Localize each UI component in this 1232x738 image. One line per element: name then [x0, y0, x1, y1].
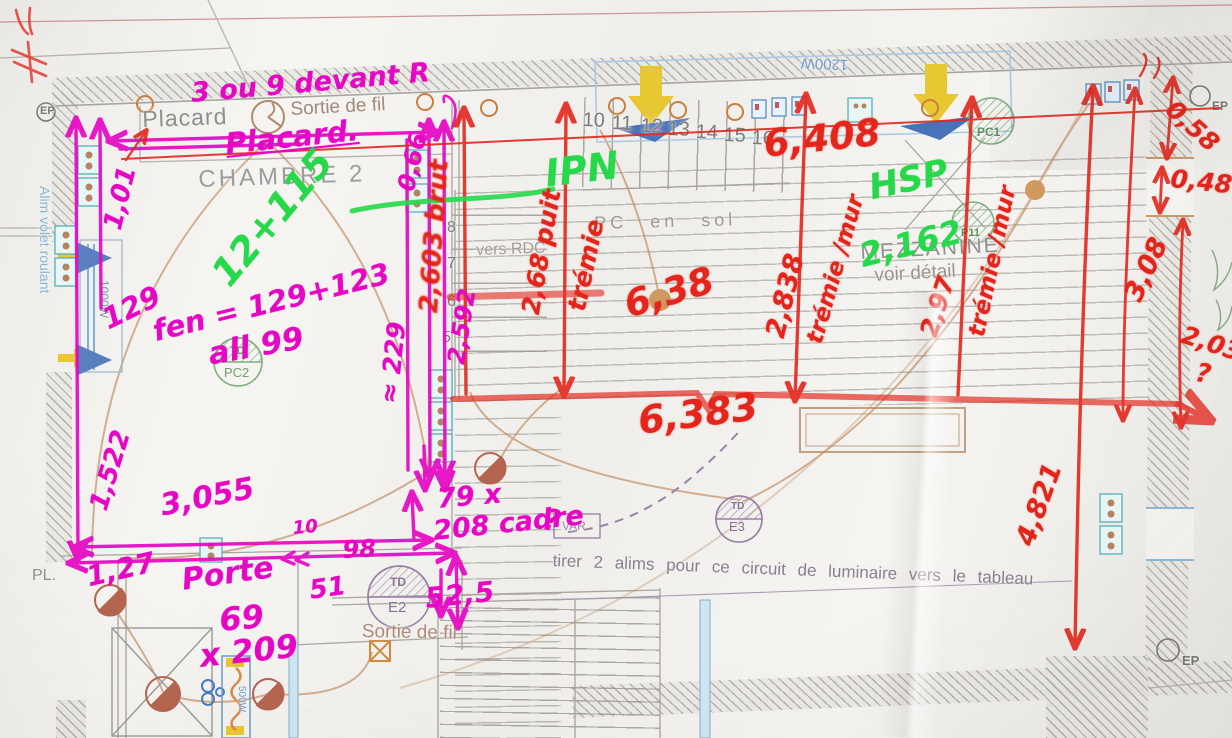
- red-dimension-lines: [12, 8, 1220, 646]
- magenta-dimension-lines: [70, 96, 458, 626]
- floor-plan-scan: Placard Sortie de fil CHAMBRE 2 vers RDC…: [0, 0, 1232, 738]
- green-ipn-line: [352, 189, 553, 211]
- ink-linework: [0, 0, 1232, 738]
